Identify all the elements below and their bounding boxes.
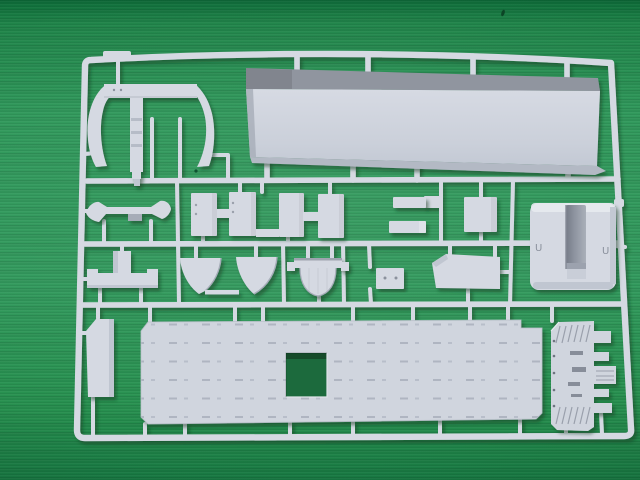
part-flight-deck: [141, 320, 542, 424]
runner-tab-top: [103, 51, 131, 59]
part-hull-cross-section: [86, 201, 171, 222]
sprue-letter-engraving-right: U: [602, 246, 609, 257]
part-u-channel-section: U U: [530, 203, 616, 290]
thin-bar-1: [393, 197, 426, 208]
runner-tab-right: [614, 199, 624, 207]
part-splinter-shield-1: [180, 258, 221, 294]
deck-tiedown-pattern: [141, 320, 542, 424]
part-angled-plate: [432, 254, 500, 289]
deck-elevator-cutout: [286, 353, 327, 397]
runner-junction-block: [424, 196, 441, 208]
part-platform-tee: [87, 251, 158, 288]
part-stern-deck-section: [551, 321, 616, 431]
part-hull-side-panel: [246, 68, 606, 175]
part-small-plate: [376, 268, 404, 289]
part-deckhouse-blocks: [191, 192, 344, 238]
sprue-scene: U U: [0, 0, 640, 480]
photo-model-kit-sprue: U U: [0, 0, 640, 480]
part-tall-panel: [86, 319, 114, 397]
part-tub-half-round: [287, 258, 349, 296]
sprue-letter-engraving-left: U: [535, 243, 542, 254]
u-channel-notch: [566, 205, 586, 269]
